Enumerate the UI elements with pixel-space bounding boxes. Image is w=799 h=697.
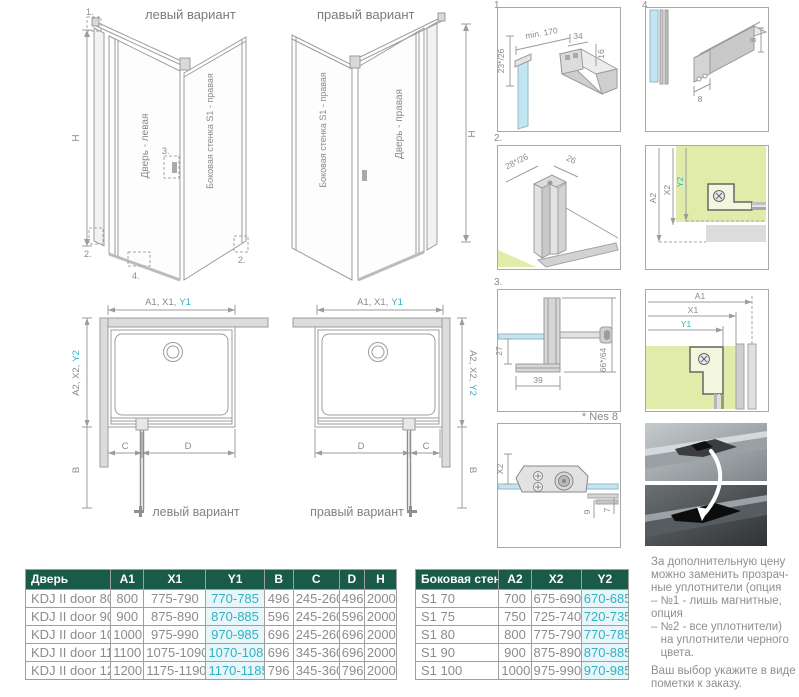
detail-2-box: 28*/26 26 [497,145,621,270]
table-cell: 345-360 [293,644,339,662]
sidewall-label: Боковая стенка S1 - правая [318,72,328,188]
dim-8-height: 8 [748,37,758,42]
table-cell: 1200 [111,662,144,680]
column-header: Y1 [206,570,264,590]
column-header: X2 [531,570,581,590]
rod-clamp [560,327,612,343]
corner-a1-box: A1 X1 Y1 [645,289,769,412]
dim-9: 9 [582,509,592,514]
enclosure [108,327,235,430]
column-header: A2 [499,570,531,590]
table-cell: 900 [499,644,531,662]
dim-a1: A1 [695,291,706,301]
dim-x1: X1 [688,305,699,315]
table-cell: 2000 [364,608,396,626]
note-paragraph-2: Ваш выбор укажите в виде пометки к заказ… [651,665,799,691]
hinge-box: X2 9 7 [497,423,621,548]
door-handle [407,506,417,517]
table-cell: 796 [339,662,364,680]
glass-panel [515,54,531,129]
glass-edge [714,394,724,409]
table-cell: S1 80 [416,626,499,644]
plan-right-caption: правый вариант [310,505,404,519]
plan-right-drawing: A1, X1,Y1 A2, X2,Y2 B D C правый вариант [283,294,493,526]
table-row: KDJ II door 1001000975-990970-985696245-… [26,626,397,644]
table-cell: 900 [111,608,144,626]
side-dims-label: A2, X2,Y2 [71,350,82,396]
table-cell: 700 [499,590,531,608]
door-label: Дверь - правая [394,89,405,159]
table-cell: 975-990 [144,626,206,644]
table-cell: 1170-1185 [206,662,264,680]
svg-text:H: H [71,134,82,141]
c-dim-label: C [122,441,129,452]
table-cell: 720-735 [581,608,628,626]
detail-2-number: 2. [494,133,502,144]
h-dimension: H [71,30,92,246]
table-cell: 770-785 [581,626,628,644]
table-cell: 870-885 [581,644,628,662]
spec-sheet-page: левый вариант правый вариант H [0,0,799,697]
table-cell: 875-890 [531,644,581,662]
table-row: KDJ II door 11011001075-10901070-1085696… [26,644,397,662]
enclosure [315,327,442,430]
door-panel [358,28,424,280]
door-dimensions-table: ДверьA1X1Y1BCDHKDJ II door 80800775-7907… [25,569,397,680]
table-cell: 770-785 [206,590,264,608]
wall-strip [736,344,756,409]
table-row: KDJ II door 80800775-790770-785496245-26… [26,590,397,608]
table-header-row: ДверьA1X1Y1BCDH [26,570,397,590]
seal-replacement-note: За дополнительную цену можно заменить пр… [651,556,799,691]
table-cell: 2000 [364,590,396,608]
glass-edge [752,202,766,210]
table-cell: 596 [264,608,293,626]
dim-8-width: 8 [698,94,703,104]
table-cell: 800 [111,590,144,608]
svg-text:1.: 1. [86,7,94,17]
side-dims-label: A2, X2,Y2 [467,350,478,396]
c-dim-label: C [423,441,430,452]
table-cell: 245-260 [293,590,339,608]
table-cell: 2000 [364,626,396,644]
column-header: A1 [111,570,144,590]
table-cell: 750 [499,608,531,626]
table-cell: 725-740 [531,608,581,626]
column-header: X1 [144,570,206,590]
dimension-lines [648,296,752,346]
dim-x2: X2 [495,464,505,475]
table-row: S1 70700675-690670-685 [416,590,629,608]
table-row: KDJ II door 12012001175-11901170-1185796… [26,662,397,680]
table-row: S1 90900875-890870-885 [416,644,629,662]
tray-edge [706,225,766,242]
glass-panel [498,334,544,339]
iso-right-drawing: H Боковая стенка S1 - правая Дверь - пра… [278,6,478,290]
dim-39: 39 [533,375,543,385]
table-cell: 800 [499,626,531,644]
table-cell: KDJ II door 100 [26,626,111,644]
b-dim-label: B [467,467,478,473]
note-paragraph-1: За дополнительную цену можно заменить пр… [651,556,799,660]
wall-profile [534,175,566,258]
table-cell: 970-985 [206,626,264,644]
table-cell: 496 [264,590,293,608]
sidewall-dimensions-table: Боковая стенка S1A2X2Y2S1 70700675-69067… [415,569,629,680]
table-cell: 1175-1190 [144,662,206,680]
table-cell: 796 [264,662,293,680]
svg-text:2.: 2. [238,255,246,265]
table-cell: 870-885 [206,608,264,626]
column-header: B [264,570,293,590]
table-cell: 1100 [111,644,144,662]
table-row: S1 1001000975-990970-985 [416,662,629,680]
table-cell: 696 [264,626,293,644]
table-cell: 675-690 [531,590,581,608]
dim-y2: Y2 [675,177,685,188]
hinge-drawing: X2 9 7 [498,424,618,545]
nes8-note: * Nes 8 [497,411,618,423]
glass-right [584,484,618,489]
column-header: Y2 [581,570,628,590]
h-dimension: H [461,24,478,242]
dim-26: 26 [565,153,578,166]
hinge-body [516,466,588,492]
table-cell: 345-360 [293,662,339,680]
column-header: D [339,570,364,590]
table-cell: 696 [264,644,293,662]
table-cell: 245-260 [293,626,339,644]
table-row: S1 75750725-740720-735 [416,608,629,626]
table-cell: 775-790 [531,626,581,644]
table-cell: S1 90 [416,644,499,662]
dim-7: 7 [602,507,612,512]
column-header: H [364,570,396,590]
table-cell: S1 70 [416,590,499,608]
door-handle [362,170,367,181]
iso-left-drawing: H Дверь - левая Боковая стенка S1 - прав… [72,6,272,290]
svg-text:4.: 4. [132,271,140,281]
svg-text:2.: 2. [84,249,92,259]
dim-16: 16 [596,49,606,59]
table-cell: 1000 [499,662,531,680]
plan-left-drawing: A1, X1,Y1 A2, X2,Y2 B C D левый вариант [68,294,278,526]
corner-a2-drawing: A2 X2 Y2 [646,146,766,267]
table-cell: KDJ II door 120 [26,662,111,680]
table-cell: 1075-1090 [144,644,206,662]
table-cell: S1 100 [416,662,499,680]
table-cell: 1070-1085 [206,644,264,662]
dim-23-26: 23*/26 [496,48,506,73]
floor-green [498,250,536,267]
dim-28-26: 28*/26 [503,151,530,171]
corner-a2-box: A2 X2 Y2 [645,145,769,270]
door-label: Дверь - левая [140,114,151,179]
table-cell: 970-985 [581,662,628,680]
detail-1-drawing: 23*/26 min. 170 34 16 [498,8,618,129]
top-dims-label: A1, X1,Y1 [145,297,191,308]
top-dims-label: A1, X1,Y1 [357,297,403,308]
detail-3-drawing: 27 39 66*/64 [498,290,618,409]
d-dim-label: D [185,441,192,452]
photo-seal-after [645,485,767,546]
hinge-block [403,418,415,430]
glass-panel [650,10,668,84]
fixed-panel [427,22,437,250]
door-handle [172,162,177,173]
side-wall-panel [184,37,246,280]
hinge-block [136,418,148,430]
support-bar [560,49,617,94]
b-dim-label: B [71,467,82,473]
dim-27: 27 [494,346,504,356]
dim-34: 34 [573,31,583,41]
door-handle [134,506,144,517]
column-header: C [293,570,339,590]
table-cell: 2000 [364,662,396,680]
table-cell: 875-890 [144,608,206,626]
table-cell: 975-990 [531,662,581,680]
table-cell: 496 [339,590,364,608]
detail-4-box: 8 8 [645,7,769,132]
detail-1-box: 23*/26 min. 170 34 16 [497,7,621,132]
table-row: KDJ II door 90900875-890870-885596245-26… [26,608,397,626]
detail-3-box: 27 39 66*/64 [497,289,621,412]
table-cell: 696 [339,626,364,644]
table-cell: 696 [339,644,364,662]
table-cell: 1000 [111,626,144,644]
fixed-panel [94,28,104,246]
column-header: Боковая стенка S1 [416,570,499,590]
table-cell: KDJ II door 80 [26,590,111,608]
table-cell: 245-260 [293,608,339,626]
dim-min170: min. 170 [525,25,559,41]
table-header-row: Боковая стенка S1A2X2Y2 [416,570,629,590]
detail-4-drawing: 8 8 [646,8,766,129]
table-row: S1 80800775-790770-785 [416,626,629,644]
column-header: Дверь [26,570,111,590]
detail-2-drawing: 28*/26 26 [498,146,618,267]
detail-3-number: 3. [494,277,502,288]
corner-a1-drawing: A1 X1 Y1 [646,290,766,409]
table-cell: 596 [339,608,364,626]
table-cell: KDJ II door 90 [26,608,111,626]
plan-left-caption: левый вариант [152,505,240,519]
svg-text:3.: 3. [162,146,170,156]
wall-edge-line [566,208,618,238]
dim-a2: A2 [648,193,658,204]
table-cell: KDJ II door 110 [26,644,111,662]
dim-x2: X2 [662,185,672,196]
table-cell: 670-685 [581,590,628,608]
dim-66-64: 66*/64 [598,347,608,372]
table-cell: 2000 [364,644,396,662]
d-dim-label: D [358,441,365,452]
svg-text:H: H [467,130,478,137]
seal-photos [645,423,767,546]
threshold-bar [694,18,766,82]
open-door [408,430,411,510]
table-cell: S1 75 [416,608,499,626]
dim-y1: Y1 [681,319,692,329]
sidewall-label: Боковая стенка S1 - правая [205,73,215,189]
table-cell: 775-790 [144,590,206,608]
photo-seal-before [645,423,767,481]
